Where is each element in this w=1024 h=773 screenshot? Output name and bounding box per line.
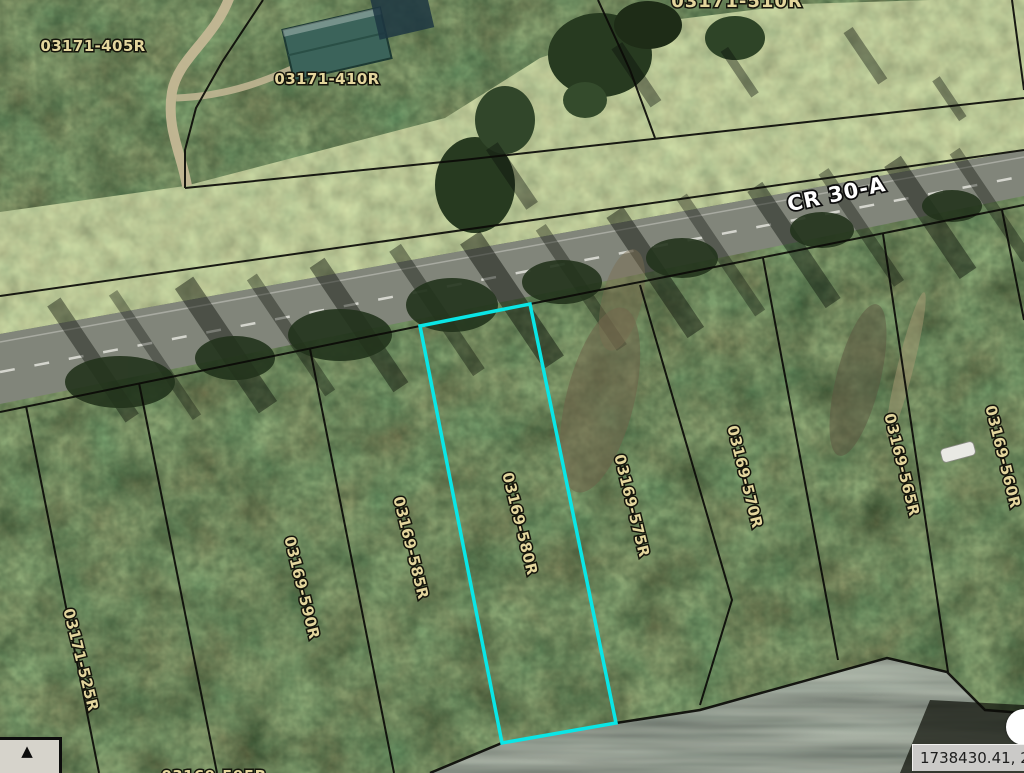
triangle-up-icon: ▲ <box>21 742 33 760</box>
parcel-label: 03171-405R <box>40 37 145 55</box>
map-viewport[interactable]: CR 30-A 03171-405R 03171-410R 03171-510R… <box>0 0 1024 773</box>
parcel-label-partial: 03171-510R <box>671 0 803 12</box>
overview-map-toggle-button[interactable]: ▲ <box>0 737 62 773</box>
coordinate-readout: 1738430.41, 25 <box>912 744 1024 771</box>
aerial-parcel-map[interactable]: CR 30-A 03171-405R 03171-410R 03171-510R… <box>0 0 1024 773</box>
parcel-label-partial: 03169-595R <box>161 767 266 773</box>
parcel-label: 03171-410R <box>274 70 379 88</box>
